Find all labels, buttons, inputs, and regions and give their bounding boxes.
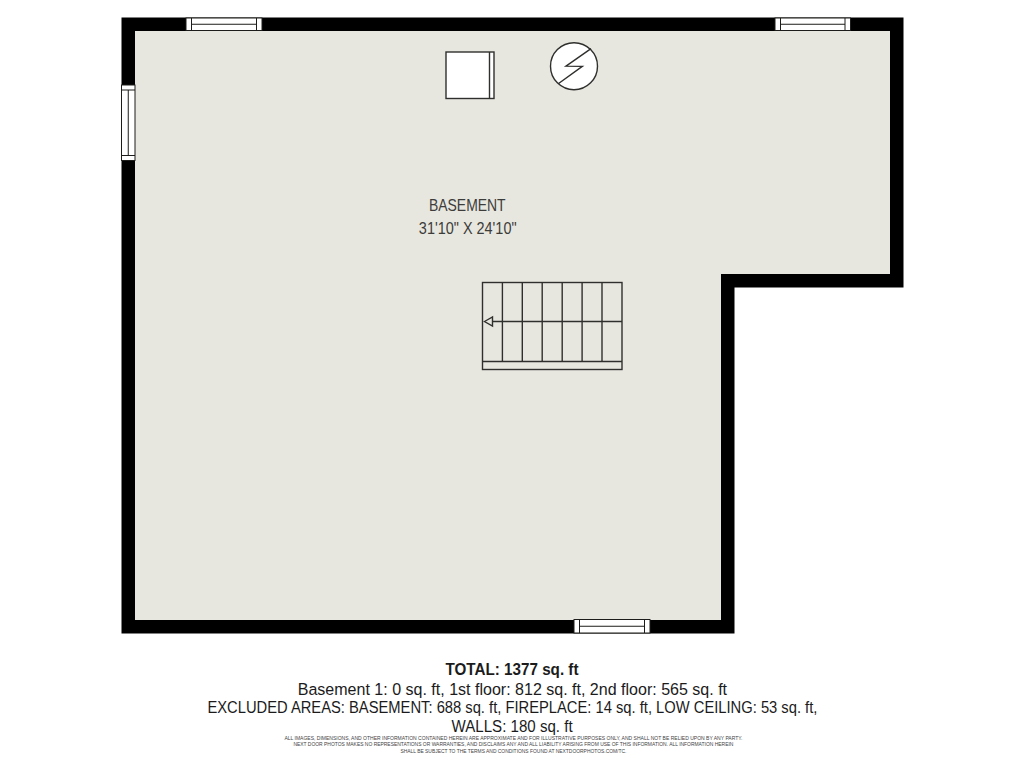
svg-text:WALLS: 180 sq. ft: WALLS: 180 sq. ft (452, 716, 573, 736)
svg-text:Basement 1: 0 sq. ft, 1st floo: Basement 1: 0 sq. ft, 1st floor: 812 sq.… (298, 679, 728, 699)
svg-text:TOTAL: 1377 sq. ft: TOTAL: 1377 sq. ft (446, 659, 579, 679)
svg-text:ALL IMAGES, DIMENSIONS, AND OT: ALL IMAGES, DIMENSIONS, AND OTHER INFORM… (284, 735, 742, 741)
svg-text:BASEMENT: BASEMENT (429, 195, 506, 215)
svg-text:SHALL BE SUBJECT TO THE TERMS: SHALL BE SUBJECT TO THE TERMS AND CONDIT… (400, 748, 626, 754)
svg-text:EXCLUDED AREAS: BASEMENT: 688: EXCLUDED AREAS: BASEMENT: 688 sq. ft, FI… (207, 697, 817, 717)
svg-text:NEXT DOOR PHOTOS MAKES NO REPR: NEXT DOOR PHOTOS MAKES NO REPRESENTATION… (293, 741, 733, 747)
svg-text:31'10" X 24'10": 31'10" X 24'10" (419, 218, 517, 238)
